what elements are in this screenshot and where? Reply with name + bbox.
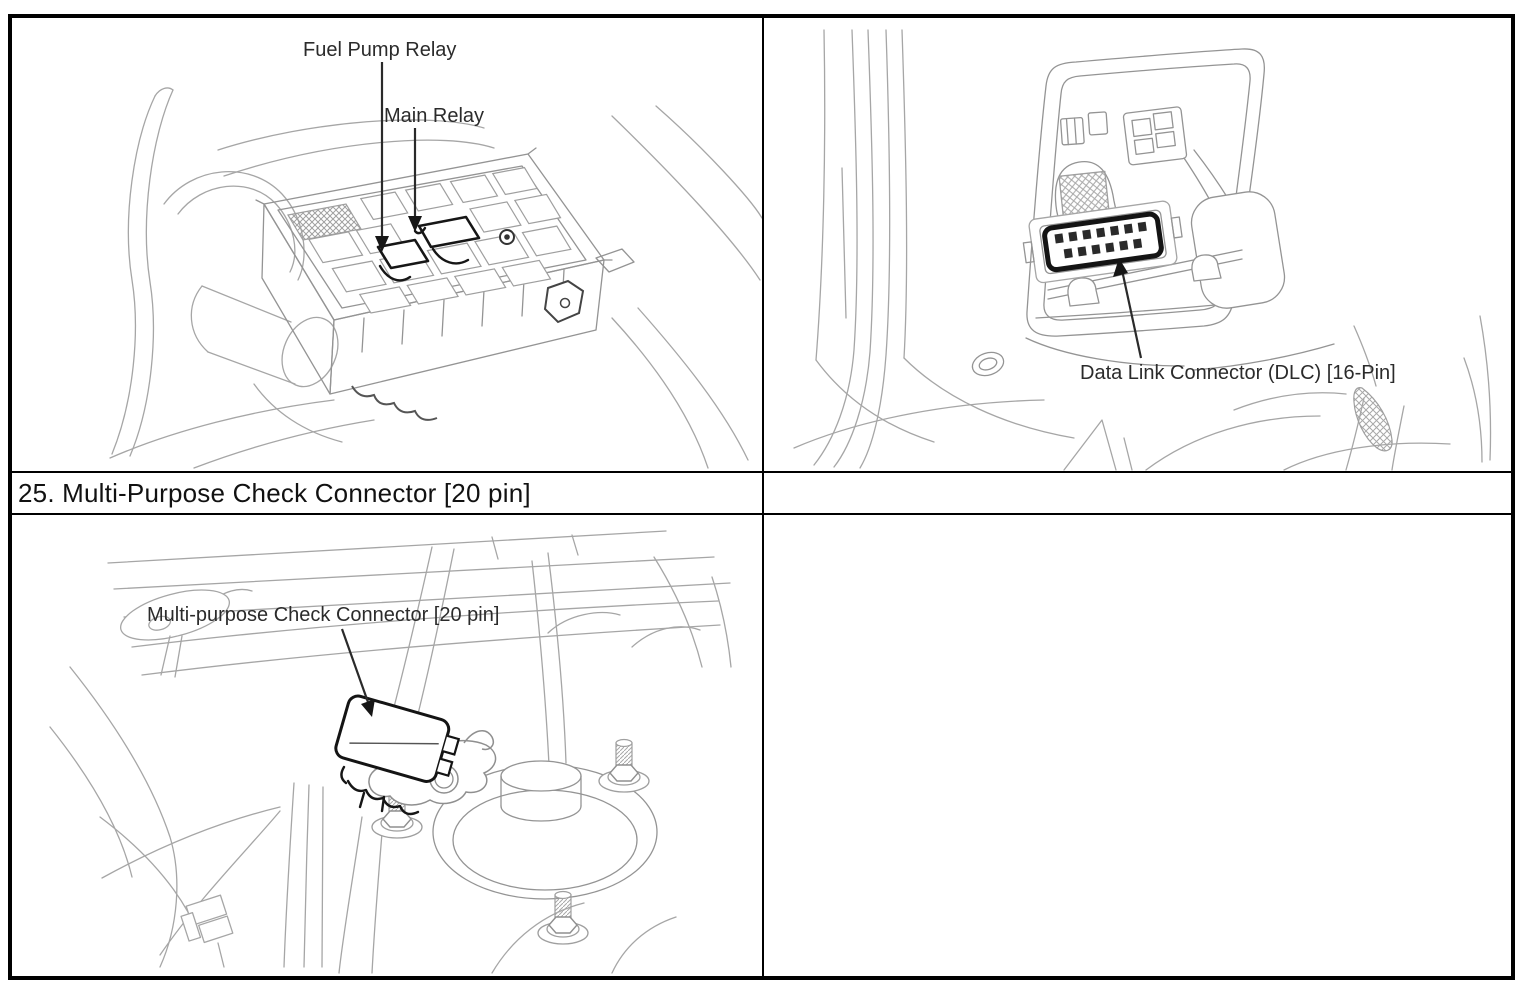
check-connector-drawing: Multi-purpose Check Connector [20 pin] <box>12 515 762 976</box>
column-divider <box>762 18 764 976</box>
engine-bay-context-lines <box>110 88 762 468</box>
cell-dlc-illustration: Data Link Connector (DLC) [16-Pin] <box>764 18 1511 471</box>
dlc-drawing: Data Link Connector (DLC) [16-Pin] <box>764 18 1511 471</box>
check-connector-label: Multi-purpose Check Connector [20 pin] <box>147 604 499 626</box>
section-title: 25. Multi-Purpose Check Connector [20 pi… <box>12 473 762 513</box>
dlc-leader <box>1113 258 1141 358</box>
cell-check-connector-illustration: Multi-purpose Check Connector [20 pin] <box>12 515 762 976</box>
cell-fusebox-illustration: Fuel Pump Relay Main Relay <box>12 18 762 471</box>
dlc-label: Data Link Connector (DLC) [16-Pin] <box>1080 362 1396 384</box>
pedal <box>1354 326 1392 451</box>
grommet <box>969 349 1006 380</box>
strut-bolt-right <box>599 740 649 793</box>
fusebox-drawing: Fuel Pump Relay Main Relay <box>12 18 762 471</box>
main-relay-label: Main Relay <box>384 105 484 127</box>
fuel-pump-relay-label: Fuel Pump Relay <box>303 39 456 61</box>
main-relay-shape <box>419 217 479 247</box>
section-title-text: 25. Multi-Purpose Check Connector [20 pi… <box>18 478 531 509</box>
page-table: Fuel Pump Relay Main Relay <box>8 14 1515 980</box>
fuel-pump-leader <box>375 62 389 252</box>
dlc-connector <box>1020 199 1185 284</box>
main-relay-leader <box>408 128 425 233</box>
manual-page: { "page": { "background": "#ffffff", "bo… <box>0 0 1526 990</box>
cell-empty <box>764 515 1511 976</box>
floor-context-lines <box>1064 316 1491 470</box>
